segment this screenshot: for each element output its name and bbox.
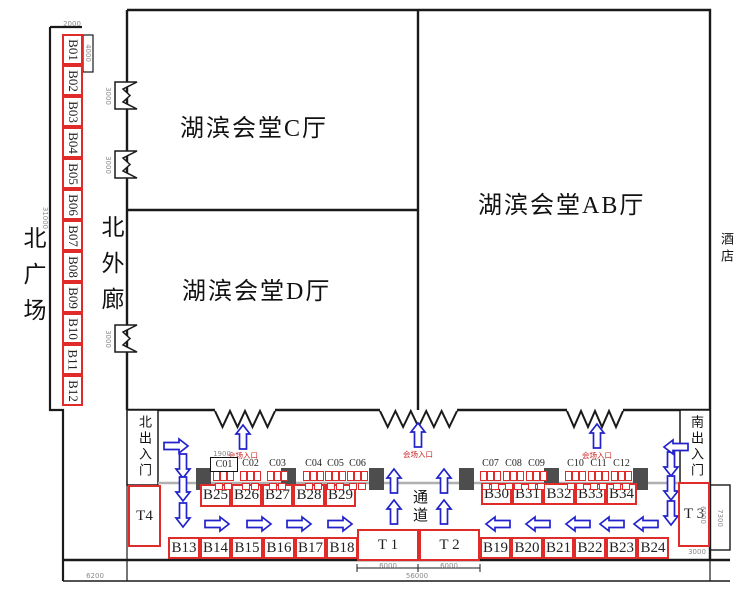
table-label: C06 <box>345 458 370 469</box>
booth-cell: B23 <box>606 537 637 559</box>
table-icon <box>213 471 234 490</box>
table-label: C03 <box>265 458 290 469</box>
table-icon <box>588 471 609 490</box>
hotel-label: 酒店 <box>717 232 736 266</box>
north-corridor-label: 北外廊 <box>93 215 127 323</box>
table-icon <box>325 471 346 490</box>
flow-arrow-up-icon <box>387 469 401 493</box>
booth-cell: B08 <box>62 251 83 282</box>
table-label: C12 <box>609 458 634 469</box>
floor-plan: 北广场 北外廊 湖滨会堂C厅 湖滨会堂D厅 湖滨会堂AB厅 酒店 北出入门 南出… <box>0 0 749 595</box>
flow-arrow-right-icon <box>205 517 229 531</box>
booth-cell-t2: T 2 <box>419 529 480 561</box>
table-icon <box>240 471 261 490</box>
dimension-label: 3000 <box>104 327 112 351</box>
double-door-icon <box>115 82 137 109</box>
dimension-label: 31000 <box>41 201 49 235</box>
booth-label: B10 <box>65 318 81 340</box>
flow-arrow-down-icon <box>664 452 678 476</box>
booth-cell: B21 <box>543 537 574 559</box>
flow-arrow-up-icon <box>437 469 451 493</box>
passage-label: 通道 <box>409 489 430 525</box>
flow-arrow-down-icon <box>664 501 678 525</box>
dimension-label: 2000 <box>60 20 84 28</box>
booth-label: B12 <box>65 380 81 402</box>
hall-ab-label: 湖滨会堂AB厅 <box>478 185 645 220</box>
booth-cell: B12 <box>62 375 83 406</box>
booth-cell: B11 <box>62 344 83 375</box>
dimension-label: 3000 <box>685 548 709 556</box>
dimension-label: 6200 <box>75 572 115 580</box>
booth-label: B03 <box>65 101 81 123</box>
table-label: C02 <box>238 458 263 469</box>
flow-arrow-left-icon <box>634 517 658 531</box>
flow-arrow-right-icon <box>287 517 311 531</box>
double-door-icon <box>115 325 137 352</box>
venue-entrance-label: 会场入口 <box>396 449 440 460</box>
booth-cell: B13 <box>168 537 200 559</box>
booth-cell: B01 <box>62 34 83 65</box>
booth-cell: B18 <box>326 537 358 559</box>
booth-cell: B09 <box>62 282 83 313</box>
flow-arrow-left-icon <box>600 517 624 531</box>
table-icon <box>267 471 288 490</box>
booth-label: B05 <box>65 163 81 185</box>
dimension-label: 6000 <box>699 503 707 527</box>
dimension-label: 7300 <box>716 506 724 530</box>
flow-arrow-up-icon <box>387 500 401 524</box>
booth-label: B06 <box>65 194 81 216</box>
table-label: C07 <box>478 458 503 469</box>
table-icon <box>347 471 368 490</box>
table-icon <box>526 471 547 490</box>
booth-cell: B14 <box>200 537 231 559</box>
booth-cell: B03 <box>62 96 83 127</box>
hall-d-label: 湖滨会堂D厅 <box>182 271 331 306</box>
dimension-label: 6000 <box>437 562 461 570</box>
accordion-door-icon <box>215 411 275 427</box>
booth-cell: B24 <box>637 537 669 559</box>
booth-cell: B22 <box>574 537 606 559</box>
booth-cell: B02 <box>62 65 83 96</box>
booth-label: B09 <box>65 287 81 309</box>
booth-label: B07 <box>65 225 81 247</box>
dimension-label: 6000 <box>376 562 400 570</box>
table-label: C09 <box>524 458 549 469</box>
table-label: C08 <box>501 458 526 469</box>
dimension-label: 1900 <box>210 450 234 458</box>
booth-cell: B05 <box>62 158 83 189</box>
flow-arrow-down-icon <box>176 477 190 501</box>
table-icon <box>303 471 324 490</box>
booth-cell-t1: T 1 <box>357 529 419 561</box>
table-icon <box>503 471 524 490</box>
booth-cell: B06 <box>62 189 83 220</box>
flow-arrow-left-icon <box>486 517 510 531</box>
flow-arrow-down-icon <box>664 476 678 500</box>
booth-label: B04 <box>65 132 81 154</box>
flow-arrow-left-icon <box>566 517 590 531</box>
table-label: C10 <box>563 458 588 469</box>
booth-cell: B17 <box>295 537 326 559</box>
double-door-icon <box>115 151 137 178</box>
table-icon <box>480 471 501 490</box>
booth-cell: B19 <box>480 537 511 559</box>
booth-cell: B04 <box>62 127 83 158</box>
table-label: C11 <box>586 458 611 469</box>
dimension-label: 3000 <box>104 84 112 108</box>
dimension-label: 56000 <box>397 572 437 580</box>
south-gate-label: 南出入门 <box>687 415 706 479</box>
booth-cell: B15 <box>231 537 263 559</box>
flow-arrow-down-icon <box>176 454 190 478</box>
flow-arrow-right-icon <box>247 517 271 531</box>
dimension-label: 3000 <box>104 153 112 177</box>
accordion-door-icon <box>567 411 623 427</box>
flow-arrow-down-icon <box>176 503 190 527</box>
table-icon <box>611 471 632 490</box>
dimension-label: 4000 <box>84 41 92 65</box>
table-label-boxed: C01 <box>210 457 238 472</box>
flow-arrow-up-icon <box>411 423 425 447</box>
booth-cell: B07 <box>62 220 83 251</box>
booth-label: B02 <box>65 70 81 92</box>
flow-arrow-up-icon <box>236 425 250 449</box>
booth-cell: B10 <box>62 313 83 344</box>
north-plaza-label: 北广场 <box>15 226 49 334</box>
booth-cell: B16 <box>263 537 295 559</box>
pillar-icon <box>369 468 384 490</box>
booth-label: B11 <box>65 349 81 370</box>
flow-arrow-left-icon <box>526 517 550 531</box>
north-gate-label: 北出入门 <box>135 415 154 479</box>
hall-c-label: 湖滨会堂C厅 <box>180 108 328 143</box>
flow-arrow-right-icon <box>328 517 352 531</box>
booth-cell: B20 <box>511 537 543 559</box>
table-icon <box>565 471 586 490</box>
flow-arrow-right-icon <box>164 439 188 453</box>
booth-label: B01 <box>65 39 81 61</box>
booth-label: B08 <box>65 256 81 278</box>
booth-cell-t4: T4 <box>128 485 161 547</box>
flow-arrow-up-icon <box>437 500 451 524</box>
pillar-icon <box>459 468 474 490</box>
